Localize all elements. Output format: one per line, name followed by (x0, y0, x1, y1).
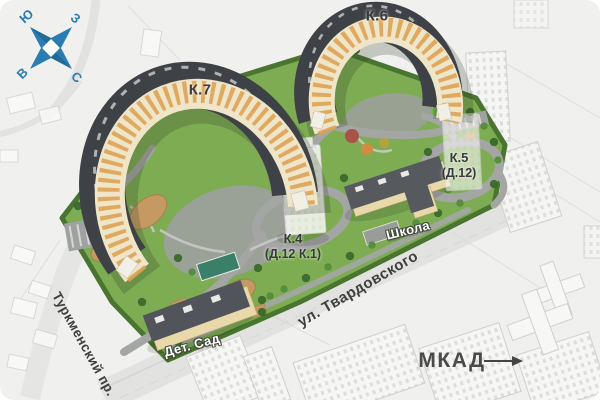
building-k4-label[interactable]: К.4 (Д.12 К.1) (265, 231, 321, 263)
site-plan: Ю З В С К.6 К.7 К.4 (Д.12 К.1) К.5 (Д.12… (0, 0, 600, 400)
compass-west-label: З (68, 10, 84, 27)
building-k5-title: К.5 (450, 150, 469, 165)
compass-rose-icon: Ю З В С (14, 6, 86, 86)
building-k4-sublabel: (Д.12 К.1) (265, 247, 321, 263)
building-k7-label[interactable]: К.7 (189, 82, 212, 99)
building-k6-label[interactable]: К.6 (366, 8, 389, 25)
building-k4-title: К.4 (284, 231, 303, 246)
mkad-label: МКАД (418, 349, 485, 373)
compass-east-label: В (14, 65, 31, 82)
building-k5-sublabel: (Д.12) (442, 166, 477, 182)
building-k5-label[interactable]: К.5 (Д.12) (442, 150, 477, 182)
compass-south-label: Ю (16, 6, 36, 26)
